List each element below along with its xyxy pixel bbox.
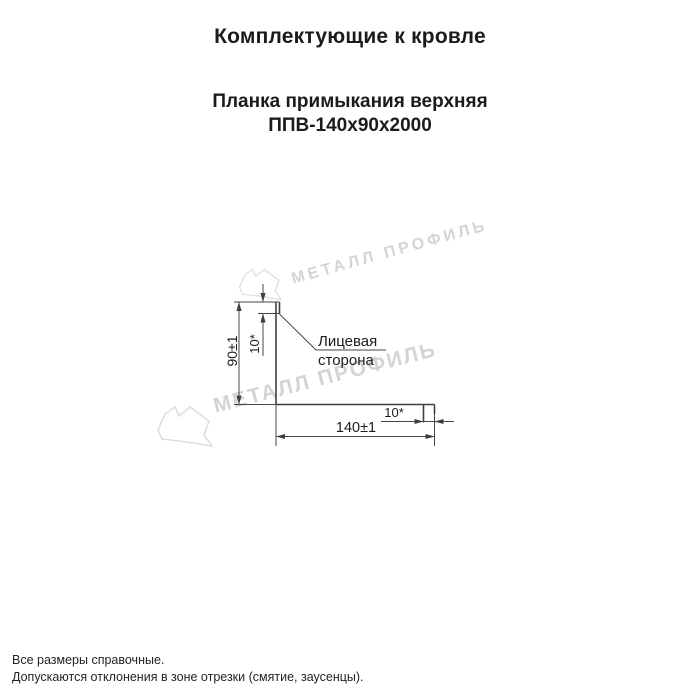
end-fold-dimension-label: 10* (384, 405, 404, 420)
height-dimension-label: 90±1 (224, 335, 240, 366)
footer-notes: Все размеры справочные. Допускаются откл… (12, 652, 364, 685)
footer-note-1: Все размеры справочные. (12, 652, 364, 669)
top-hem-dimension-label: 10* (247, 334, 262, 354)
face-side-label-line1: Лицевая (318, 333, 377, 350)
page: Комплектующие к кровле Планка примыкания… (0, 0, 700, 700)
face-side-label-line2: сторона (318, 352, 375, 369)
width-dimension-label: 140±1 (336, 420, 376, 436)
technical-drawing: 90±1 10* Лицевая сторона 10* 140±1 (0, 0, 700, 700)
footer-note-2: Допускаются отклонения в зоне отрезки (с… (12, 669, 364, 686)
